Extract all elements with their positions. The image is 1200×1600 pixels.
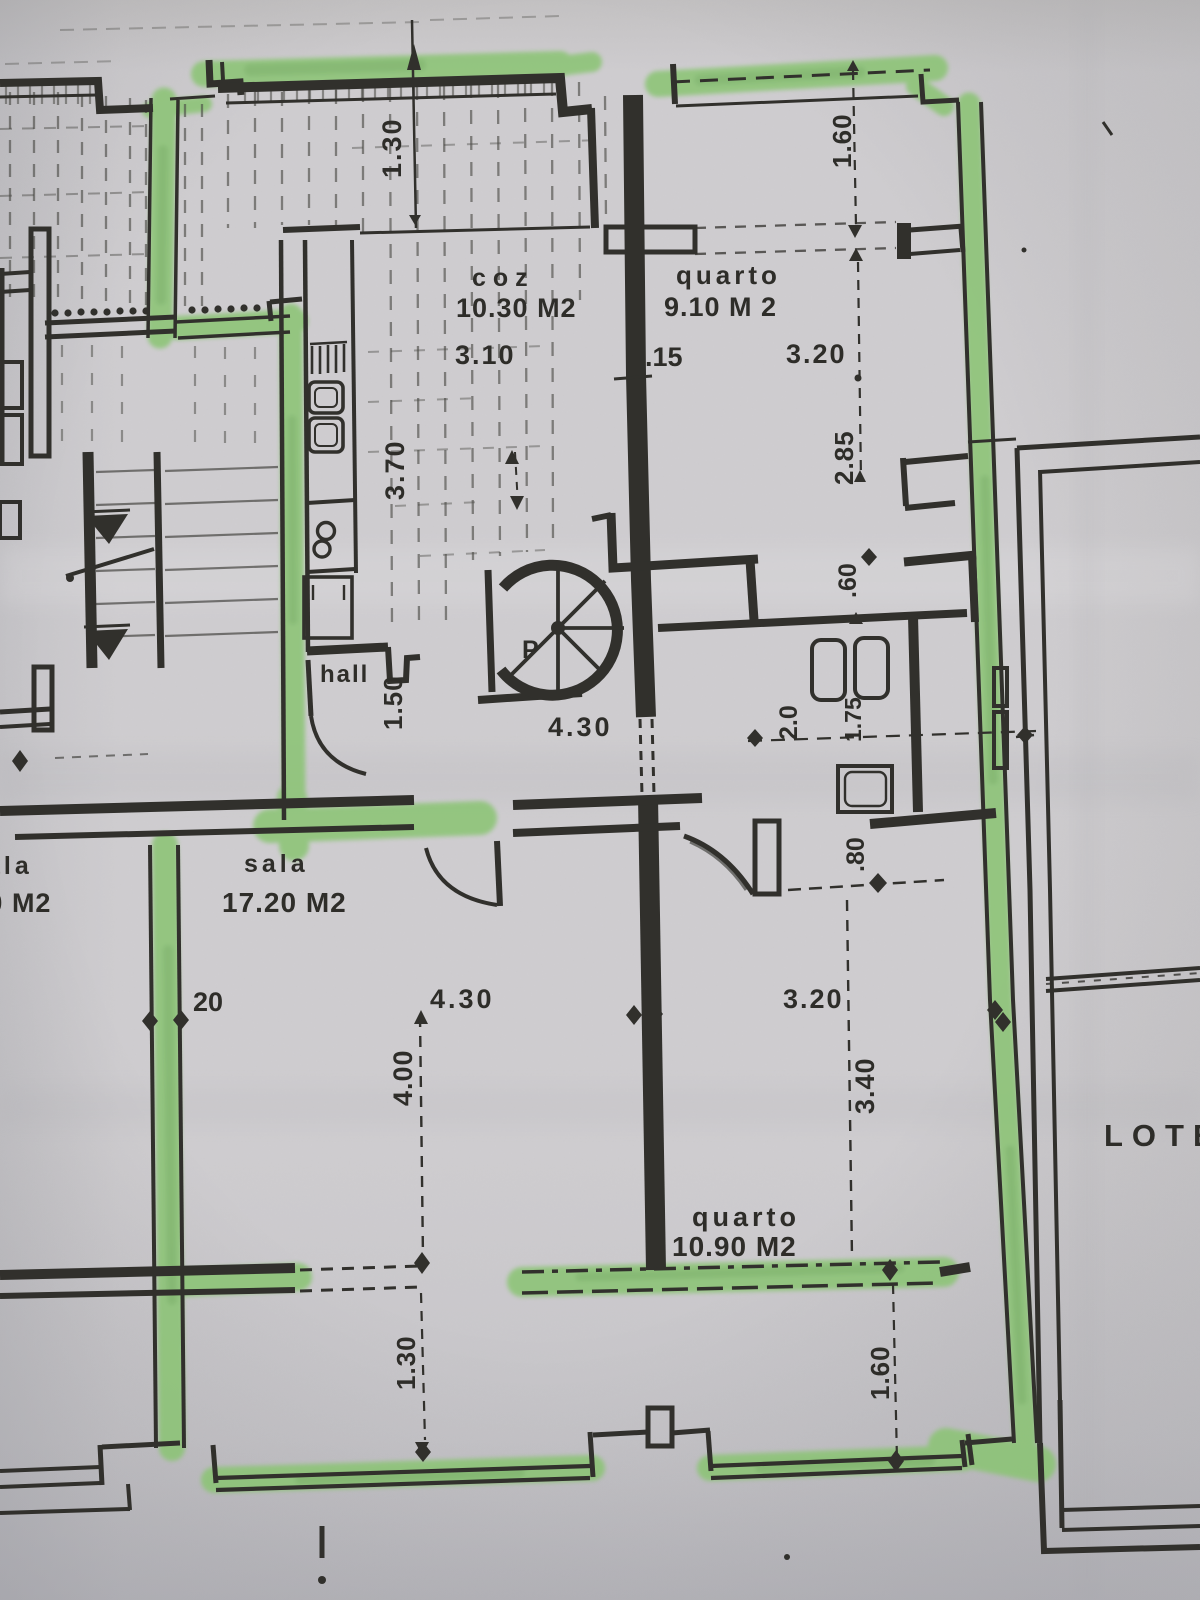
svg-text:17.20 M2: 17.20 M2 bbox=[222, 887, 347, 918]
svg-text:2.0: 2.0 bbox=[775, 705, 803, 740]
svg-text:20: 20 bbox=[193, 987, 223, 1017]
svg-text:ala: ala bbox=[0, 852, 33, 880]
svg-text:2.85: 2.85 bbox=[829, 430, 859, 485]
svg-text:hall: hall bbox=[320, 661, 369, 688]
svg-text:1.60: 1.60 bbox=[827, 113, 857, 168]
svg-text:.15: .15 bbox=[645, 342, 683, 372]
svg-text:3.20: 3.20 bbox=[783, 984, 844, 1014]
svg-text:1.75: 1.75 bbox=[840, 697, 866, 742]
svg-text:3.70: 3.70 bbox=[380, 439, 410, 500]
svg-text:10.90 M2: 10.90 M2 bbox=[672, 1231, 797, 1262]
svg-text:sala: sala bbox=[244, 850, 309, 878]
svg-text:P: P bbox=[522, 636, 539, 664]
svg-text:1.30: 1.30 bbox=[391, 1335, 421, 1390]
svg-text:3.20: 3.20 bbox=[786, 339, 847, 369]
svg-text:1.60: 1.60 bbox=[865, 1345, 895, 1400]
svg-text:coz: coz bbox=[472, 264, 535, 292]
svg-text:9.10 M 2: 9.10 M 2 bbox=[664, 292, 777, 322]
svg-text:4.00: 4.00 bbox=[388, 1049, 418, 1106]
svg-text:3.10: 3.10 bbox=[455, 340, 516, 370]
svg-text:quarto: quarto bbox=[676, 260, 781, 290]
svg-text:1.30: 1.30 bbox=[377, 117, 407, 178]
svg-text:'0 M2: '0 M2 bbox=[0, 888, 51, 918]
svg-text:quarto: quarto bbox=[692, 1202, 800, 1232]
svg-text:3.40: 3.40 bbox=[850, 1057, 880, 1114]
svg-text:4.30: 4.30 bbox=[548, 712, 613, 742]
svg-text:.60: .60 bbox=[834, 563, 862, 598]
svg-text:10.30 M2: 10.30 M2 bbox=[456, 293, 577, 323]
svg-text:4.30: 4.30 bbox=[430, 984, 495, 1014]
svg-text:.80: .80 bbox=[842, 837, 870, 872]
svg-text:LOTE: LOTE bbox=[1104, 1118, 1200, 1153]
svg-text:1.50: 1.50 bbox=[378, 675, 408, 730]
